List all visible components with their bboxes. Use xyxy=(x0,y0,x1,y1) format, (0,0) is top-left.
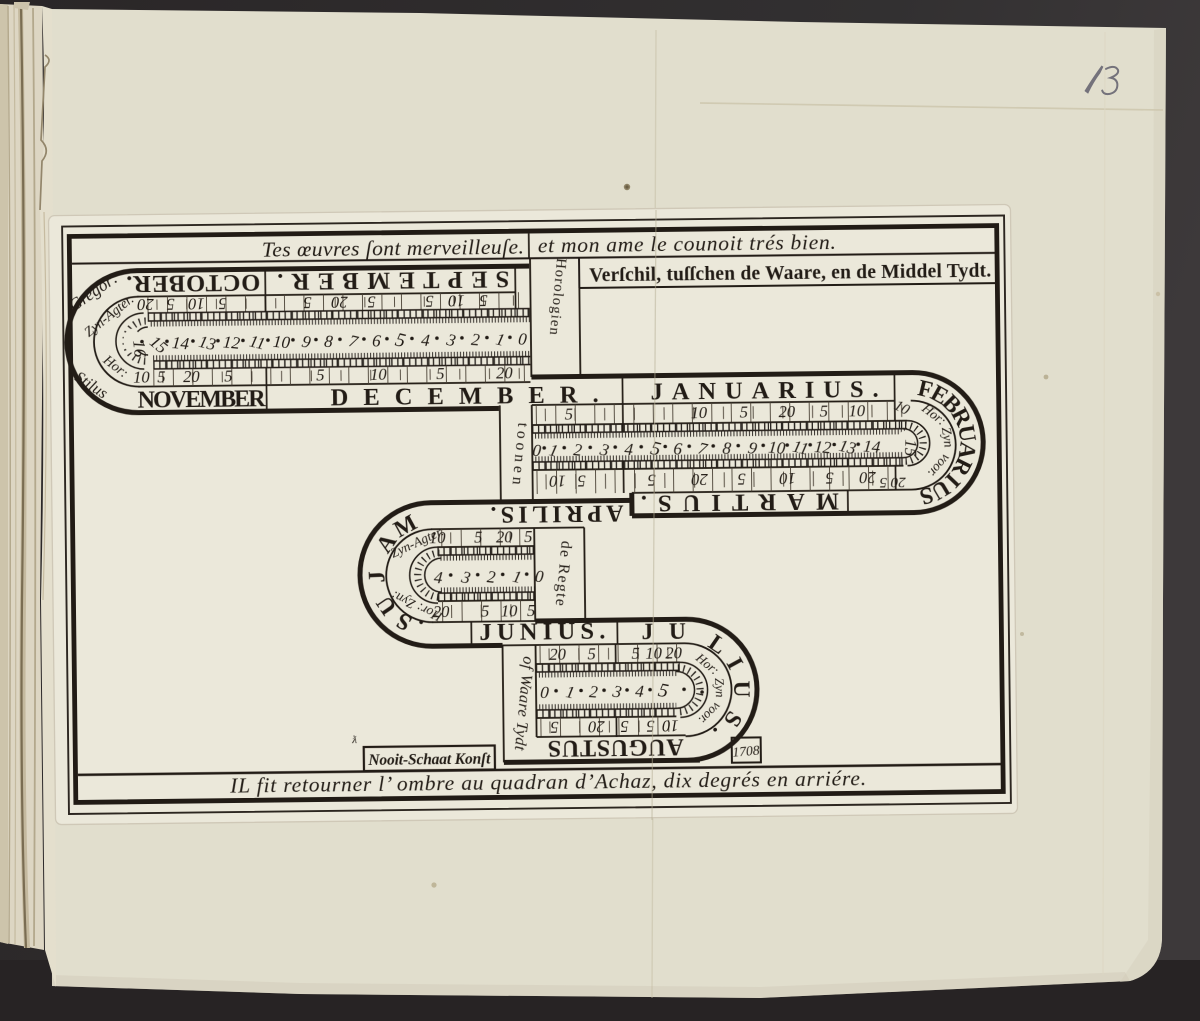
svg-text:5: 5 xyxy=(577,471,585,490)
svg-text:10: 10 xyxy=(133,368,150,387)
svg-text:5: 5 xyxy=(820,402,828,421)
svg-text:10: 10 xyxy=(778,469,795,488)
svg-text:12: 12 xyxy=(222,332,241,353)
svg-text:14: 14 xyxy=(171,333,190,354)
svg-text:et mon ame le counoit trés bie: et mon ame le counoit trés bien. xyxy=(538,230,836,257)
svg-text:10: 10 xyxy=(645,644,662,663)
svg-text:20: 20 xyxy=(549,645,566,664)
svg-text:AUGUSTUS: AUGUSTUS xyxy=(548,733,684,761)
svg-text:NOVEMBER: NOVEMBER xyxy=(137,386,266,414)
svg-text:20: 20 xyxy=(330,293,347,312)
svg-text:5: 5 xyxy=(474,528,482,547)
svg-text:16: 16 xyxy=(129,339,150,358)
svg-text:5: 5 xyxy=(565,405,573,424)
svg-text:5: 5 xyxy=(166,295,174,314)
svg-text:5: 5 xyxy=(737,470,745,489)
svg-text:10: 10 xyxy=(848,401,865,420)
svg-text:10: 10 xyxy=(272,332,291,353)
svg-text:5: 5 xyxy=(224,367,232,386)
svg-text:20: 20 xyxy=(665,643,682,662)
svg-text:5: 5 xyxy=(479,291,487,310)
svg-text:5: 5 xyxy=(550,718,558,737)
svg-text:10: 10 xyxy=(690,403,707,422)
svg-text:5: 5 xyxy=(157,367,165,386)
svg-text:5: 5 xyxy=(825,469,833,488)
svg-text:5: 5 xyxy=(631,644,639,663)
svg-text:OCTOBER.: OCTOBER. xyxy=(126,269,260,298)
svg-text:10: 10 xyxy=(501,601,518,620)
svg-text:5: 5 xyxy=(620,717,628,736)
svg-text:20: 20 xyxy=(136,295,153,314)
svg-text:20 5: 20 5 xyxy=(879,474,906,490)
svg-text:5: 5 xyxy=(316,365,324,384)
svg-text:15: 15 xyxy=(901,439,920,456)
svg-text:U: U xyxy=(669,619,686,645)
svg-text:10: 10 xyxy=(370,365,387,384)
svg-text:J: J xyxy=(641,619,653,645)
svg-text:Zyn: Zyn xyxy=(939,426,957,449)
svg-text:5: 5 xyxy=(218,294,226,313)
svg-text:10: 10 xyxy=(549,472,566,491)
svg-text:20: 20 xyxy=(778,402,795,421)
svg-text:5: 5 xyxy=(425,292,433,311)
svg-text:20: 20 xyxy=(496,363,513,382)
svg-text:20: 20 xyxy=(496,527,513,546)
svg-text:10: 10 xyxy=(661,716,678,735)
svg-text:5: 5 xyxy=(646,717,654,736)
svg-text:Zyn: Zyn xyxy=(712,677,728,697)
svg-text:12: 12 xyxy=(813,437,832,458)
svg-text:20: 20 xyxy=(183,367,200,386)
svg-text:20: 20 xyxy=(587,717,604,736)
svg-text:5: 5 xyxy=(587,644,595,663)
svg-text:JUNIUS.: JUNIUS. xyxy=(479,618,605,646)
svg-text:5: 5 xyxy=(740,403,748,422)
svg-text:5: 5 xyxy=(527,601,535,620)
svg-text:10: 10 xyxy=(187,294,204,313)
svg-text:5: 5 xyxy=(481,602,489,621)
svg-text:20: 20 xyxy=(858,468,875,487)
svg-text:1708: 1708 xyxy=(732,742,760,759)
svg-text:14: 14 xyxy=(862,436,881,457)
svg-text:U: U xyxy=(728,680,754,697)
svg-text:ƛ: ƛ xyxy=(351,734,357,746)
svg-text:Tes œuvres ſont merveilleuſe.: Tes œuvres ſont merveilleuſe. xyxy=(262,235,524,262)
svg-text:J: J xyxy=(364,570,391,583)
svg-text:5: 5 xyxy=(436,364,444,383)
svg-text:5: 5 xyxy=(303,293,311,312)
svg-text:10: 10 xyxy=(447,291,464,310)
svg-text:5: 5 xyxy=(367,292,375,311)
svg-text:Nooit-Schaat Konſt: Nooit-Schaat Konſt xyxy=(367,751,491,769)
svg-text:5: 5 xyxy=(524,527,532,546)
svg-text:20: 20 xyxy=(690,470,707,489)
